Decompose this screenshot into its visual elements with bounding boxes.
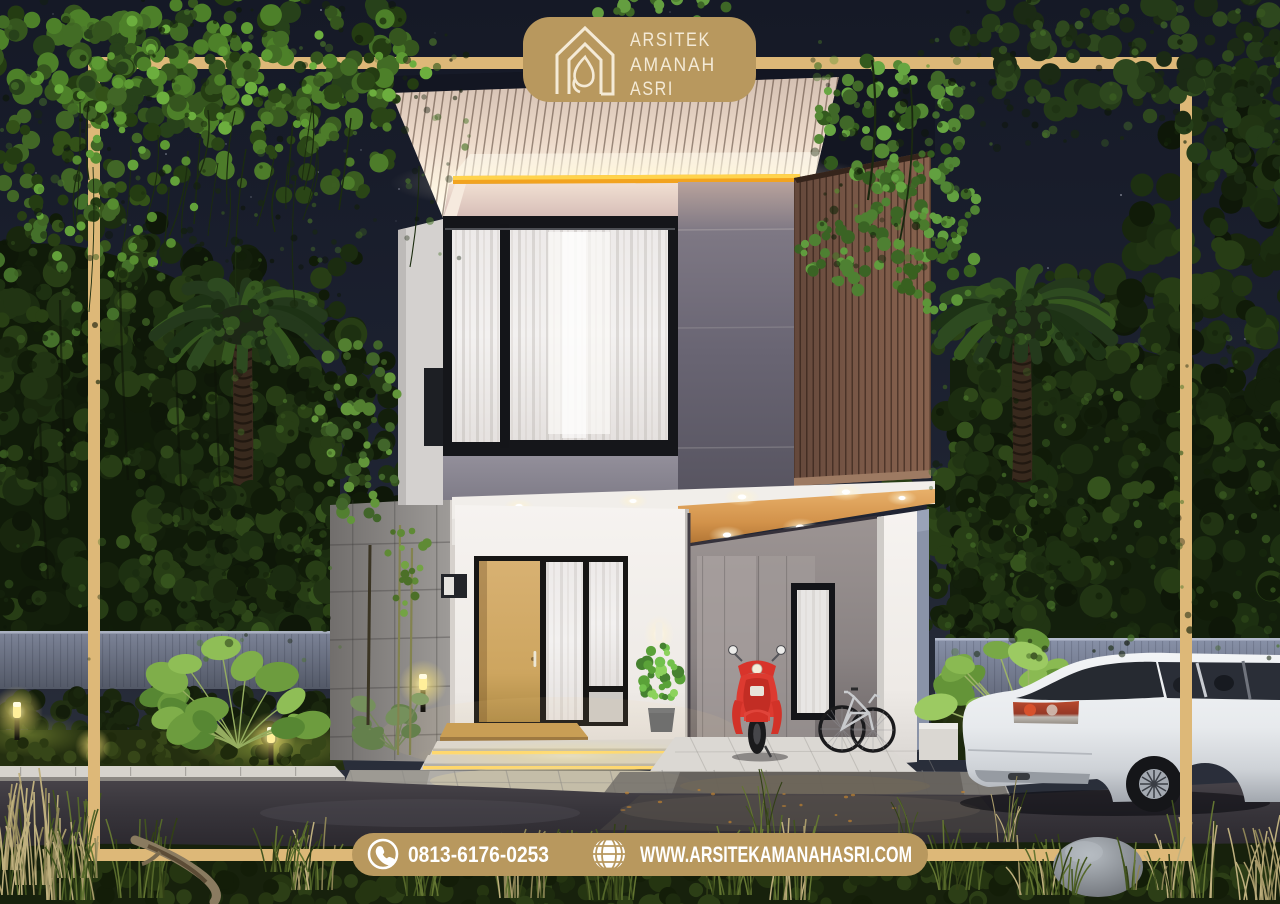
svg-text:ASRI: ASRI — [630, 78, 674, 100]
svg-text:WWW.ARSITEKAMANAHASRI.COM: WWW.ARSITEKAMANAHASRI.COM — [640, 842, 912, 867]
svg-text:ARSITEK: ARSITEK — [630, 29, 711, 51]
svg-text:AMANAH: AMANAH — [630, 54, 716, 76]
svg-text:0813-6176-0253: 0813-6176-0253 — [408, 842, 549, 867]
